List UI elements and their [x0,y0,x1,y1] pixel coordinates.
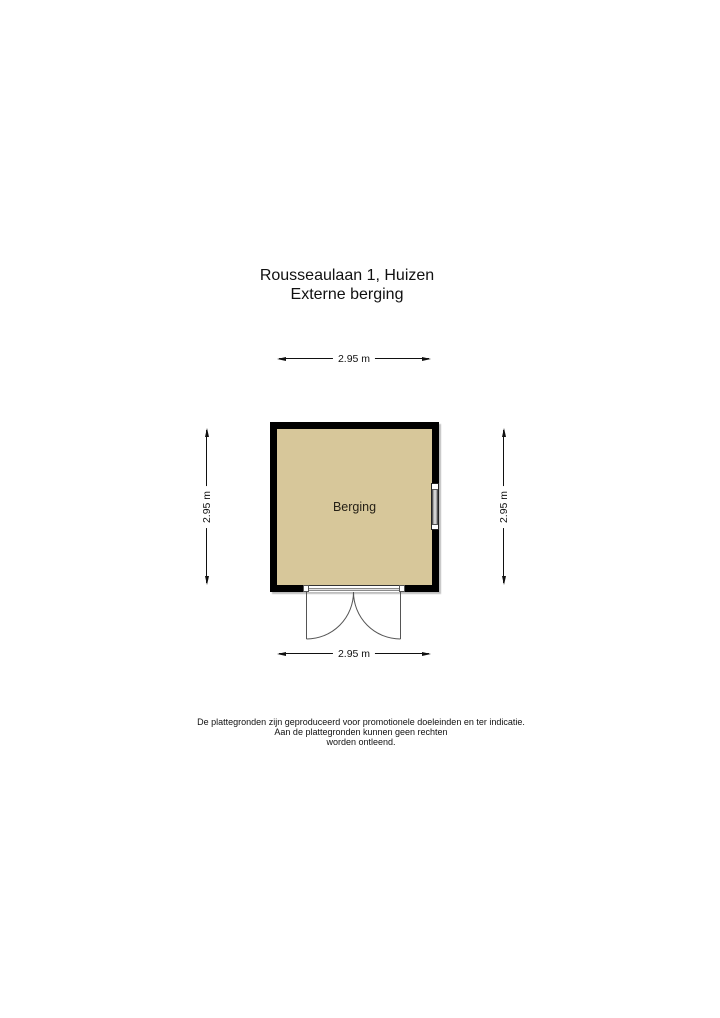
room-interior: Berging [277,429,432,585]
arrow-up-icon [502,428,506,437]
dimension-right: 2.95 m [497,428,510,585]
window-glass [432,489,438,525]
arrow-right-icon [422,652,431,656]
disclaimer: De plattegronden zijn geproduceerd voor … [1,717,720,747]
page-title: Rousseaulaan 1, Huizen [0,266,694,285]
floorplan-room: Berging [270,422,439,592]
dimension-label-bottom: 2.95 m [333,648,375,660]
dimension-label-left: 2.95 m [201,485,213,527]
floorplan-page: Rousseaulaan 1, Huizen Externe berging 2… [0,0,720,1018]
arrow-left-icon [277,652,286,656]
arrow-up-icon [205,428,209,437]
dimension-bottom: 2.95 m [277,647,431,660]
window-icon [431,483,439,530]
dimension-label-right: 2.95 m [498,485,510,527]
dimension-top: 2.95 m [277,352,431,365]
double-door-swing-icon [296,585,411,647]
room-label: Berging [333,500,376,514]
disclaimer-line1: De plattegronden zijn geproduceerd voor … [1,717,720,727]
disclaimer-line3: worden ontleend. [1,737,720,747]
disclaimer-line2: Aan de plattegronden kunnen geen rechten [1,727,720,737]
dimension-left: 2.95 m [200,428,213,585]
arrow-down-icon [205,576,209,585]
title-block: Rousseaulaan 1, Huizen Externe berging [0,266,694,304]
arrow-right-icon [422,357,431,361]
dimension-label-top: 2.95 m [333,353,375,365]
page-subtitle: Externe berging [0,285,694,304]
arrow-down-icon [502,576,506,585]
arrow-left-icon [277,357,286,361]
